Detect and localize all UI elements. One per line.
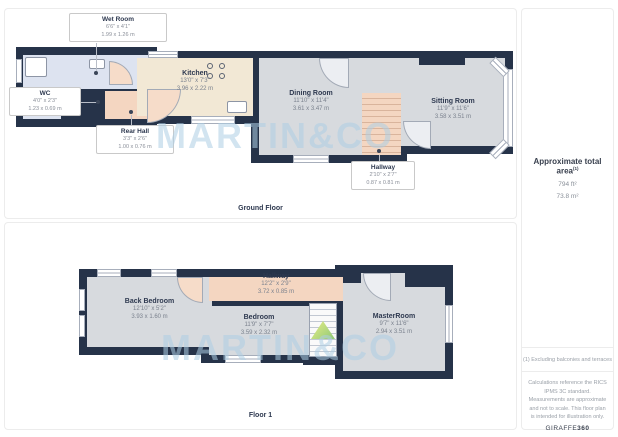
- hall-landing: [362, 58, 401, 93]
- room-dims-metric: 2.94 x 3.51 m: [343, 329, 445, 337]
- floorplan-page: Kitchen 13'0" x 7'3" 3.96 x 2.22 m Dinin…: [0, 0, 618, 437]
- footnote-section: (1) Excluding balconies and terraces: [522, 348, 613, 372]
- room-label-dining: Dining Room 11'10" x 11'4" 3.61 x 3.47 m: [259, 89, 363, 114]
- basin: [89, 59, 105, 69]
- room-name: Sitting Room: [401, 97, 505, 106]
- room-name: Dining Room: [259, 89, 363, 98]
- room-dims-metric: 3.72 x 0.85 m: [209, 289, 343, 297]
- room-name: WC: [12, 90, 78, 98]
- floor-caption: Floor 1: [5, 412, 516, 419]
- room-label-hallway: Hallway 12'2" x 2'9" 3.72 x 0.85 m: [209, 272, 343, 297]
- room-name: Kitchen: [139, 69, 251, 78]
- chimney-breast: [419, 51, 465, 65]
- room-label-back-bedroom: Back Bedroom 12'10" x 5'2" 3.93 x 1.60 m: [87, 297, 212, 322]
- leader-dot: [129, 110, 133, 114]
- giraffe360-logo: GIRAFFE360: [522, 425, 613, 432]
- room-dims-imperial: 12'10" x 5'2": [87, 306, 212, 314]
- total-area-ft: 794 ft²: [522, 181, 613, 188]
- brand-suffix: 360: [577, 425, 589, 432]
- room-name: Wet Room: [72, 16, 164, 24]
- stairs: [362, 93, 401, 155]
- room-dims-imperial: 11'10" x 11'4": [259, 98, 363, 106]
- room-dims-imperial: 12'2" x 2'9": [209, 281, 343, 289]
- leader-dot: [94, 71, 98, 75]
- room-label-bedroom: Bedroom 11'9" x 7'7" 3.59 x 2.32 m: [209, 313, 309, 338]
- room-label-sitting: Sitting Room 11'9" x 11'6" 3.58 x 3.51 m: [401, 97, 505, 122]
- window: [16, 59, 22, 83]
- room-label-kitchen: Kitchen 13'0" x 7'3" 3.96 x 2.22 m: [139, 69, 251, 94]
- room-name: MasterRoom: [343, 312, 445, 321]
- room-dims-imperial: 13'0" x 7'3": [139, 78, 251, 86]
- window: [191, 116, 235, 124]
- room-dims-metric: 3.96 x 2.22 m: [139, 86, 251, 94]
- window: [79, 315, 85, 337]
- window: [148, 51, 178, 58]
- total-area-block: Approximate total area(1) 794 ft² 73.8 m…: [522, 157, 613, 200]
- window: [445, 305, 453, 343]
- sink: [227, 101, 247, 113]
- room-dims-metric: 3.59 x 2.32 m: [209, 330, 309, 338]
- window: [97, 269, 121, 277]
- room-dims-imperial: 11'9" x 11'6": [401, 106, 505, 114]
- room-dims-imperial: 2'10" x 2'7": [354, 172, 412, 179]
- room-name: Rear Hall: [99, 128, 171, 136]
- leader-line: [96, 43, 97, 71]
- first-floor-card: Back Bedroom 12'10" x 5'2" 3.93 x 1.60 m…: [4, 222, 517, 430]
- room-name: Hallway: [209, 272, 343, 281]
- shower-tray: [25, 57, 47, 77]
- room-dims-imperial: 11'9" x 7'7": [209, 322, 309, 330]
- window: [225, 355, 261, 363]
- total-area-text: Approximate total area: [533, 157, 601, 176]
- room-name: Bedroom: [209, 313, 309, 322]
- room-dims-metric: 1.99 x 1.26 m: [72, 32, 164, 39]
- room-dims-imperial: 4'0" x 2'3": [12, 98, 78, 105]
- label-box-wet-room: Wet Room 6'6" x 4'1" 1.99 x 1.26 m: [69, 13, 167, 42]
- ground-floor-card: Kitchen 13'0" x 7'3" 3.96 x 2.22 m Dinin…: [4, 8, 517, 219]
- label-box-rear-hall: Rear Hall 3'3" x 2'6" 1.00 x 0.76 m: [96, 125, 174, 154]
- room-dims-metric: 3.61 x 3.47 m: [259, 106, 363, 114]
- wall-stub: [343, 273, 361, 283]
- leader-dot: [377, 149, 381, 153]
- disclaimer-section: Calculations reference the RICS IPMS 3C …: [522, 379, 613, 437]
- room-dims-metric: 0.87 x 0.81 m: [354, 180, 412, 187]
- chimney-breast: [405, 273, 445, 287]
- room-dims-metric: 3.58 x 3.51 m: [401, 114, 505, 122]
- label-box-hallway: Hallway 2'10" x 2'7" 0.87 x 0.81 m: [351, 161, 415, 190]
- room-dims-imperial: 9'7" x 11'6": [343, 321, 445, 329]
- total-area-label: Approximate total area(1): [522, 157, 613, 176]
- room-dims-metric: 1.23 x 0.69 m: [12, 106, 78, 113]
- room-label-master: MasterRoom 9'7" x 11'6" 2.94 x 3.51 m: [343, 312, 445, 337]
- brand-name: GIRAFFE: [545, 425, 577, 432]
- room-name: Back Bedroom: [87, 297, 212, 306]
- total-area-footnote-marker: (1): [573, 166, 579, 171]
- window: [79, 289, 85, 311]
- room-dims-imperial: 3'3" x 2'6": [99, 136, 171, 143]
- total-area-m: 73.8 m²: [522, 193, 613, 200]
- room-dims-metric: 3.93 x 1.60 m: [87, 314, 212, 322]
- window: [151, 269, 177, 277]
- room-name: Hallway: [354, 164, 412, 172]
- label-box-wc: WC 4'0" x 2'3" 1.23 x 0.69 m: [9, 87, 81, 116]
- room-dims-imperial: 6'6" x 4'1": [72, 24, 164, 31]
- info-panel: Approximate total area(1) 794 ft² 73.8 m…: [521, 8, 614, 430]
- total-area-section: Approximate total area(1) 794 ft² 73.8 m…: [522, 9, 613, 348]
- leader-dot: [96, 100, 100, 104]
- footnote-text: (1) Excluding balconies and terraces: [523, 357, 612, 363]
- room-dims-metric: 1.00 x 0.76 m: [99, 144, 171, 151]
- leader-line: [131, 115, 132, 125]
- floor-caption: Ground Floor: [5, 205, 516, 212]
- window: [293, 155, 329, 163]
- disclaimer-text: Calculations reference the RICS IPMS 3C …: [528, 379, 607, 422]
